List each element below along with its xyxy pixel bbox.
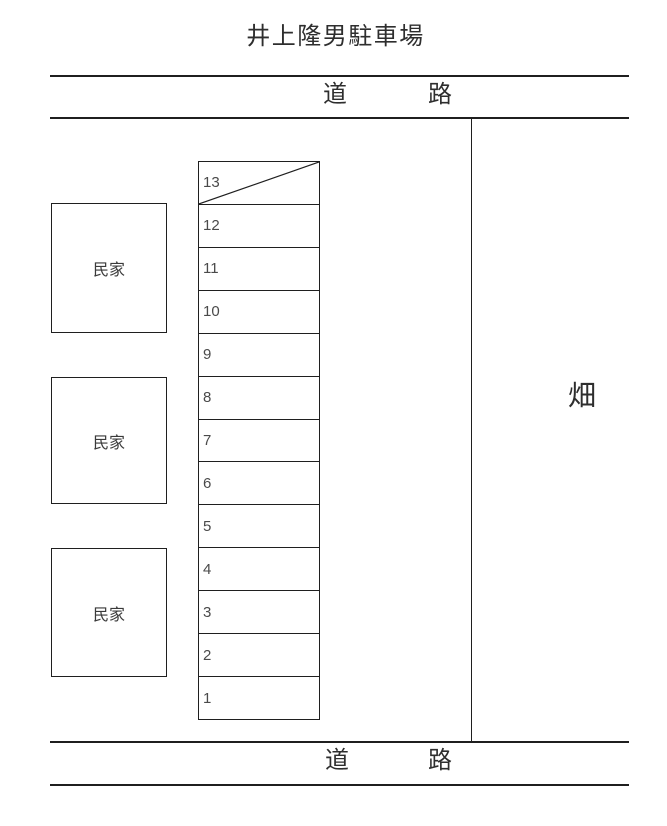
house-box-2: 民家 bbox=[51, 377, 167, 504]
parking-space-number: 3 bbox=[199, 604, 211, 621]
parking-space-number: 2 bbox=[199, 647, 211, 664]
parking-space-number: 4 bbox=[199, 561, 211, 578]
parking-space-row: 6 bbox=[199, 462, 319, 505]
parking-space-number: 6 bbox=[199, 475, 211, 492]
house-box-1: 民家 bbox=[51, 203, 167, 333]
parking-space-row: 13 bbox=[199, 162, 319, 205]
parking-space-row: 4 bbox=[199, 548, 319, 591]
field-boundary-line bbox=[471, 119, 472, 741]
road-top-label-right: 路 bbox=[428, 82, 452, 108]
parking-space-number: 12 bbox=[199, 217, 220, 234]
house-label: 民家 bbox=[93, 601, 125, 625]
parking-space-row: 2 bbox=[199, 634, 319, 677]
parking-space-number: 1 bbox=[199, 690, 211, 707]
parking-space-row: 1 bbox=[199, 677, 319, 719]
parking-space-number: 8 bbox=[199, 389, 211, 406]
road-top-label-left: 道 bbox=[323, 82, 347, 108]
parking-lot-diagram: 井上隆男駐車場 道 路 畑 民家 民家 民家 13 12 11 10 9 bbox=[0, 0, 667, 826]
parking-space-row: 11 bbox=[199, 248, 319, 291]
road-bottom-lower-line bbox=[50, 784, 629, 786]
parking-space-row: 12 bbox=[199, 205, 319, 248]
house-box-3: 民家 bbox=[51, 548, 167, 677]
road-bottom-label-left: 道 bbox=[325, 748, 349, 774]
road-bottom-upper-line bbox=[50, 741, 629, 743]
road-bottom-label-right: 路 bbox=[428, 748, 452, 774]
parking-space-row: 3 bbox=[199, 591, 319, 634]
parking-space-number: 11 bbox=[199, 260, 219, 277]
parking-space-number: 9 bbox=[199, 346, 211, 363]
parking-space-row: 9 bbox=[199, 334, 319, 377]
field-label: 畑 bbox=[568, 381, 596, 411]
house-label: 民家 bbox=[93, 429, 125, 453]
parking-space-row: 7 bbox=[199, 420, 319, 463]
parking-space-number: 7 bbox=[199, 432, 211, 449]
parking-space-number: 13 bbox=[199, 174, 220, 191]
parking-space-row: 8 bbox=[199, 377, 319, 420]
page-title: 井上隆男駐車場 bbox=[4, 16, 667, 51]
parking-grid: 13 12 11 10 9 8 7 6 5 4 3 bbox=[198, 161, 320, 720]
road-top-upper-line bbox=[50, 75, 629, 77]
road-top-lower-line bbox=[50, 117, 629, 119]
parking-space-row: 5 bbox=[199, 505, 319, 548]
parking-space-number: 5 bbox=[199, 518, 211, 535]
house-label: 民家 bbox=[93, 256, 125, 280]
parking-space-row: 10 bbox=[199, 291, 319, 334]
parking-space-number: 10 bbox=[199, 303, 220, 320]
